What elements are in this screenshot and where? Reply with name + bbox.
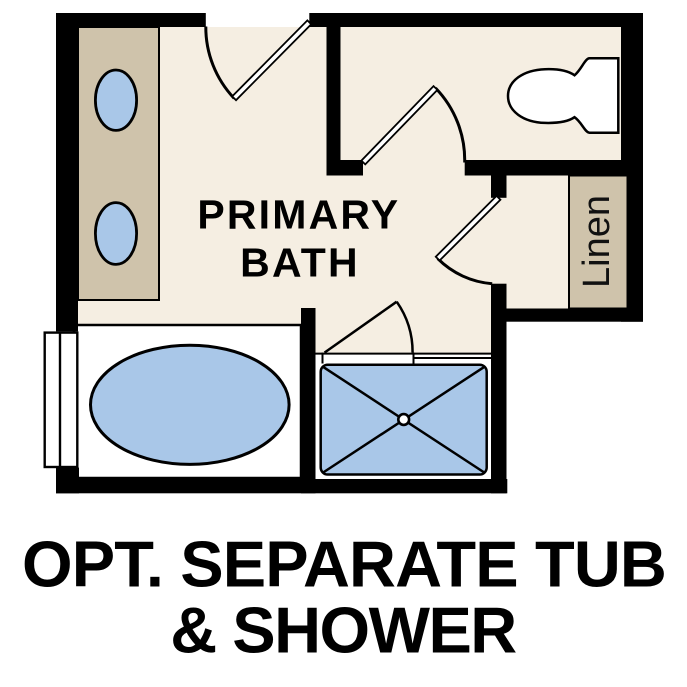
svg-text:OPT. SEPARATE TUB: OPT. SEPARATE TUB — [22, 528, 666, 601]
svg-text:& SHOWER: & SHOWER — [170, 593, 516, 666]
svg-text:Linen: Linen — [576, 195, 618, 288]
svg-text:PRIMARY: PRIMARY — [197, 192, 400, 238]
svg-text:BATH: BATH — [240, 240, 360, 286]
